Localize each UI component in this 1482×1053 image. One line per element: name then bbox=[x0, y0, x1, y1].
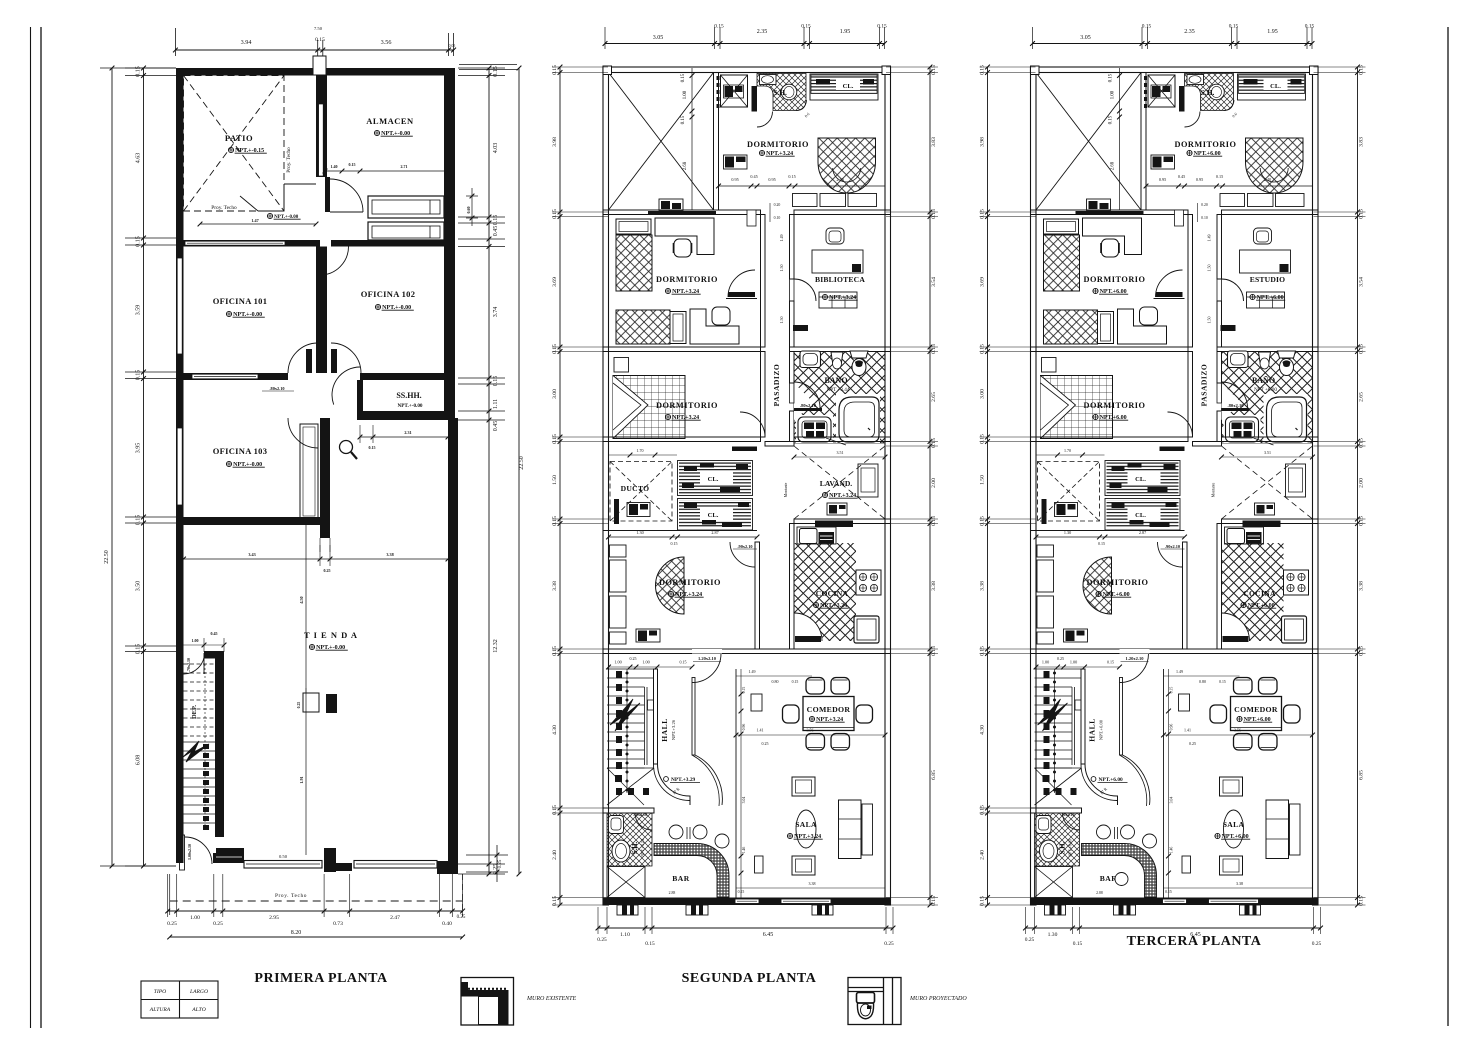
svg-text:0.15: 0.15 bbox=[877, 24, 887, 30]
svg-text:0.05: 0.05 bbox=[449, 44, 456, 48]
svg-text:3.69: 3.69 bbox=[552, 277, 558, 287]
svg-text:0.96: 0.96 bbox=[742, 724, 746, 731]
svg-text:1.10: 1.10 bbox=[620, 932, 630, 938]
svg-text:1.50: 1.50 bbox=[980, 475, 986, 485]
svg-text:0.15: 0.15 bbox=[931, 646, 937, 656]
svg-text:0.40: 0.40 bbox=[442, 921, 452, 927]
svg-text:0.15: 0.15 bbox=[1216, 174, 1223, 179]
svg-text:1.30: 1.30 bbox=[636, 530, 643, 535]
svg-text:3.56: 3.56 bbox=[807, 728, 814, 733]
svg-text:0.73: 0.73 bbox=[333, 921, 343, 927]
svg-text:0.15: 0.15 bbox=[680, 660, 687, 665]
svg-text:SS.HH.: SS.HH. bbox=[396, 391, 421, 400]
svg-text:1.50: 1.50 bbox=[552, 475, 558, 485]
svg-text:3.38: 3.38 bbox=[386, 552, 393, 557]
svg-text:0.15: 0.15 bbox=[931, 896, 937, 906]
svg-text:NPT.+6.00: NPT.+6.00 bbox=[1099, 719, 1104, 740]
svg-text:3.50: 3.50 bbox=[136, 581, 142, 592]
svg-text:0.15: 0.15 bbox=[1109, 73, 1114, 82]
svg-text:0.15: 0.15 bbox=[980, 896, 986, 906]
svg-text:0.45: 0.45 bbox=[211, 631, 218, 636]
svg-text:MURO EXISTENTE: MURO EXISTENTE bbox=[526, 996, 576, 1002]
svg-text:1.46: 1.46 bbox=[1170, 847, 1174, 854]
svg-text:3.95: 3.95 bbox=[136, 443, 142, 454]
svg-text:1.00: 1.00 bbox=[642, 660, 649, 665]
svg-text:0.95: 0.95 bbox=[768, 177, 775, 182]
svg-text:CL.: CL. bbox=[1135, 512, 1146, 519]
svg-text:1.50: 1.50 bbox=[779, 265, 784, 272]
svg-text:T I E N D A: T I E N D A bbox=[304, 630, 358, 640]
svg-text:1.47: 1.47 bbox=[251, 218, 258, 223]
svg-text:1.49: 1.49 bbox=[749, 669, 756, 674]
svg-text:1.49: 1.49 bbox=[1207, 235, 1212, 242]
svg-text:2.00: 2.00 bbox=[931, 478, 937, 488]
svg-text:OFICINA 101: OFICINA 101 bbox=[213, 296, 268, 306]
svg-text:DORMITORIO: DORMITORIO bbox=[1083, 401, 1145, 410]
svg-text:CL.: CL. bbox=[1270, 83, 1281, 90]
svg-text:1.00: 1.00 bbox=[614, 660, 621, 665]
svg-text:0.15: 0.15 bbox=[1219, 680, 1226, 684]
svg-text:DORMITORIO: DORMITORIO bbox=[659, 578, 721, 587]
svg-text:0.15: 0.15 bbox=[1165, 890, 1172, 894]
svg-text:.70x2.10: .70x2.10 bbox=[633, 812, 647, 817]
svg-text:.90x2.10: .90x2.10 bbox=[737, 544, 752, 549]
svg-text:1.00: 1.00 bbox=[1042, 660, 1049, 665]
svg-text:COMEDOR: COMEDOR bbox=[807, 705, 851, 714]
svg-text:2.40: 2.40 bbox=[1264, 177, 1271, 182]
svg-text:0.15: 0.15 bbox=[552, 209, 558, 219]
svg-text:1.00: 1.00 bbox=[192, 638, 199, 643]
svg-text:3.38: 3.38 bbox=[1359, 581, 1365, 591]
svg-text:BAÑO: BAÑO bbox=[1252, 376, 1275, 385]
svg-text:ALTURA: ALTURA bbox=[149, 1007, 171, 1013]
svg-text:SALA: SALA bbox=[795, 820, 817, 829]
svg-text:ESTUDIO: ESTUDIO bbox=[1250, 275, 1286, 284]
svg-text:2.71: 2.71 bbox=[401, 164, 408, 169]
svg-text:3.54: 3.54 bbox=[931, 277, 937, 287]
svg-text:0.15: 0.15 bbox=[931, 516, 937, 526]
svg-text:CL.: CL. bbox=[1135, 476, 1146, 483]
svg-text:SALA: SALA bbox=[1223, 820, 1245, 829]
svg-text:0.15: 0.15 bbox=[1073, 941, 1083, 947]
svg-text:3.56: 3.56 bbox=[381, 39, 392, 46]
svg-text:1.30: 1.30 bbox=[1064, 530, 1071, 535]
svg-text:0.15: 0.15 bbox=[493, 66, 499, 77]
svg-text:3.83: 3.83 bbox=[931, 137, 937, 147]
svg-text:0.60: 0.60 bbox=[466, 207, 471, 214]
svg-text:2.87: 2.87 bbox=[1139, 530, 1146, 535]
svg-text:3.74: 3.74 bbox=[493, 307, 499, 318]
svg-text:0.15: 0.15 bbox=[980, 434, 986, 444]
svg-text:NPT +6.00: NPT +6.00 bbox=[1254, 387, 1277, 393]
svg-text:0.15: 0.15 bbox=[645, 941, 655, 947]
svg-text:1.95: 1.95 bbox=[1267, 29, 1278, 35]
svg-text:0.15: 0.15 bbox=[980, 646, 986, 656]
svg-text:3.00: 3.00 bbox=[552, 389, 558, 399]
svg-text:3.51: 3.51 bbox=[1264, 450, 1271, 455]
svg-text:0.80: 0.80 bbox=[1199, 679, 1206, 684]
svg-text:DORMITORIO: DORMITORIO bbox=[1083, 275, 1145, 284]
svg-text:0.15: 0.15 bbox=[1305, 24, 1315, 30]
svg-text:0.45: 0.45 bbox=[1178, 174, 1185, 179]
svg-text:1.70: 1.70 bbox=[637, 448, 644, 453]
svg-text:3.05: 3.05 bbox=[653, 35, 664, 41]
svg-text:0.15: 0.15 bbox=[1109, 115, 1114, 124]
svg-text:1.49: 1.49 bbox=[779, 235, 784, 242]
svg-text:1.30: 1.30 bbox=[1048, 932, 1058, 938]
svg-text:PATIO: PATIO bbox=[225, 133, 253, 143]
svg-text:0.10: 0.10 bbox=[1201, 216, 1208, 220]
svg-text:SEGUNDA PLANTA: SEGUNDA PLANTA bbox=[682, 971, 817, 986]
svg-text:3.38: 3.38 bbox=[931, 581, 937, 591]
svg-text:0.15: 0.15 bbox=[681, 73, 686, 82]
svg-text:3.98: 3.98 bbox=[552, 137, 558, 147]
svg-text:6.08: 6.08 bbox=[136, 755, 142, 766]
svg-text:0.80: 0.80 bbox=[772, 679, 779, 684]
svg-text:0.15: 0.15 bbox=[1107, 660, 1114, 665]
svg-text:2.88: 2.88 bbox=[669, 891, 676, 895]
svg-text:0.15: 0.15 bbox=[681, 115, 686, 124]
svg-text:0.25: 0.25 bbox=[630, 656, 637, 661]
svg-text:CL.: CL. bbox=[843, 83, 854, 90]
svg-text:.80x2.10: .80x2.10 bbox=[1227, 403, 1244, 408]
svg-text:0.15: 0.15 bbox=[980, 65, 986, 75]
svg-text:2.88: 2.88 bbox=[1096, 891, 1103, 895]
svg-text:3.94: 3.94 bbox=[241, 39, 252, 46]
svg-text:1.40: 1.40 bbox=[331, 164, 338, 169]
svg-text:1.20x2.10: 1.20x2.10 bbox=[1126, 656, 1145, 661]
svg-text:2.35: 2.35 bbox=[1184, 29, 1195, 35]
svg-text:0.15: 0.15 bbox=[801, 24, 811, 30]
svg-text:0.25: 0.25 bbox=[324, 568, 331, 573]
svg-text:0.15: 0.15 bbox=[738, 890, 745, 894]
svg-text:0.25: 0.25 bbox=[213, 921, 223, 927]
svg-text:1.49: 1.49 bbox=[1176, 669, 1183, 674]
svg-text:0.95: 0.95 bbox=[1196, 177, 1203, 182]
svg-text:2.40: 2.40 bbox=[980, 850, 986, 860]
svg-text:0.15: 0.15 bbox=[369, 445, 376, 450]
svg-text:0.15: 0.15 bbox=[980, 516, 986, 526]
svg-text:0.25: 0.25 bbox=[1189, 741, 1196, 746]
svg-text:Montante: Montante bbox=[784, 482, 788, 497]
svg-text:0.25: 0.25 bbox=[1025, 937, 1035, 943]
svg-text:3.83: 3.83 bbox=[1359, 137, 1365, 147]
svg-text:0.15: 0.15 bbox=[552, 344, 558, 354]
svg-text:0.25: 0.25 bbox=[297, 702, 301, 709]
svg-text:1.91: 1.91 bbox=[299, 776, 304, 783]
svg-text:0.15: 0.15 bbox=[349, 162, 356, 167]
svg-text:4.63: 4.63 bbox=[136, 153, 142, 164]
svg-text:3.54: 3.54 bbox=[1359, 277, 1365, 287]
svg-text:3.38: 3.38 bbox=[980, 581, 986, 591]
svg-text:0.25: 0.25 bbox=[762, 741, 769, 746]
svg-text:4.30: 4.30 bbox=[980, 725, 986, 735]
svg-text:NPT.+3.26: NPT.+3.26 bbox=[671, 719, 676, 740]
svg-text:.70x2.10: .70x2.10 bbox=[1061, 812, 1075, 817]
svg-text:0.15: 0.15 bbox=[792, 680, 799, 684]
svg-text:2.40: 2.40 bbox=[836, 177, 843, 182]
svg-text:0.15: 0.15 bbox=[493, 376, 499, 387]
svg-text:0.25: 0.25 bbox=[1312, 941, 1322, 947]
svg-text:NPT.+6.00: NPT.+6.00 bbox=[1068, 839, 1073, 857]
svg-text:0.20: 0.20 bbox=[774, 203, 781, 207]
svg-text:0.15: 0.15 bbox=[315, 37, 325, 43]
svg-text:3.04: 3.04 bbox=[742, 797, 746, 804]
svg-text:NPT +3.44: NPT +3.44 bbox=[826, 387, 849, 393]
svg-text:0.15: 0.15 bbox=[136, 515, 142, 526]
svg-text:3.38: 3.38 bbox=[809, 881, 816, 886]
svg-text:MURO PROYECTADO: MURO PROYECTADO bbox=[909, 996, 967, 1002]
svg-text:1.00: 1.00 bbox=[683, 90, 688, 99]
svg-text:DEP.: DEP. bbox=[191, 705, 198, 719]
svg-text:0.15: 0.15 bbox=[1359, 438, 1365, 448]
svg-text:Montante: Montante bbox=[1212, 482, 1216, 497]
svg-text:0.15: 0.15 bbox=[552, 646, 558, 656]
svg-text:S.H.: S.H. bbox=[773, 88, 787, 97]
svg-text:0.15: 0.15 bbox=[671, 541, 678, 546]
svg-text:0.15: 0.15 bbox=[980, 344, 986, 354]
svg-text:DORMITORIO: DORMITORIO bbox=[656, 401, 718, 410]
svg-text:0.20: 0.20 bbox=[1201, 203, 1208, 207]
svg-text:0.15: 0.15 bbox=[552, 434, 558, 444]
svg-text:0.15: 0.15 bbox=[1359, 344, 1365, 354]
svg-text:3.51: 3.51 bbox=[837, 450, 844, 455]
svg-text:6.85: 6.85 bbox=[1359, 770, 1365, 780]
svg-text:DUCTO: DUCTO bbox=[621, 484, 650, 493]
svg-text:0.15: 0.15 bbox=[552, 896, 558, 906]
svg-text:ALTO: ALTO bbox=[191, 1007, 205, 1013]
svg-text:3.43: 3.43 bbox=[248, 552, 255, 557]
svg-text:0.15: 0.15 bbox=[552, 65, 558, 75]
svg-text:0.50: 0.50 bbox=[279, 854, 288, 859]
svg-text:2.65: 2.65 bbox=[1359, 392, 1365, 402]
svg-text:CL.: CL. bbox=[708, 476, 719, 483]
svg-text:1.00: 1.00 bbox=[1070, 660, 1077, 665]
svg-text:0.15: 0.15 bbox=[931, 65, 937, 75]
svg-text:0.15: 0.15 bbox=[931, 344, 937, 354]
svg-text:DORMITORIO: DORMITORIO bbox=[656, 275, 718, 284]
svg-text:0.25: 0.25 bbox=[1057, 656, 1064, 661]
svg-text:0.45: 0.45 bbox=[493, 421, 499, 432]
svg-text:OFICINA 103: OFICINA 103 bbox=[213, 446, 268, 456]
svg-text:1.50: 1.50 bbox=[779, 317, 784, 324]
svg-text:NPT.+3.29: NPT.+3.29 bbox=[671, 777, 696, 783]
svg-text:12.32: 12.32 bbox=[493, 639, 499, 653]
svg-text:LARGO: LARGO bbox=[189, 989, 208, 995]
svg-text:0.15: 0.15 bbox=[788, 174, 795, 179]
svg-text:0.15: 0.15 bbox=[742, 687, 746, 694]
svg-text:1.41: 1.41 bbox=[757, 728, 764, 733]
svg-text:0.15: 0.15 bbox=[493, 215, 499, 226]
svg-text:0.15: 0.15 bbox=[714, 24, 724, 30]
svg-text:6.45: 6.45 bbox=[763, 932, 774, 938]
svg-text:1.11: 1.11 bbox=[493, 399, 499, 409]
svg-text:.90x2.10: .90x2.10 bbox=[1165, 544, 1180, 549]
svg-text:BIBLIOTECA: BIBLIOTECA bbox=[815, 275, 865, 284]
svg-text:0.15: 0.15 bbox=[931, 438, 937, 448]
svg-text:0.15: 0.15 bbox=[1359, 209, 1365, 219]
svg-text:8.20: 8.20 bbox=[291, 930, 302, 936]
svg-text:4.30: 4.30 bbox=[552, 725, 558, 735]
svg-text:S.H.: S.H. bbox=[1060, 841, 1067, 854]
svg-text:1.70: 1.70 bbox=[1064, 448, 1071, 453]
svg-text:DORMITORIO: DORMITORIO bbox=[747, 140, 809, 149]
svg-text:BAR: BAR bbox=[672, 874, 690, 883]
svg-text:TIPO: TIPO bbox=[154, 989, 166, 995]
svg-text:.80x2.10: .80x2.10 bbox=[269, 386, 284, 391]
svg-text:0.25: 0.25 bbox=[884, 941, 894, 947]
svg-text:0.25: 0.25 bbox=[498, 859, 503, 868]
svg-text:DORMITORIO: DORMITORIO bbox=[1174, 140, 1236, 149]
svg-text:0.15: 0.15 bbox=[1229, 24, 1239, 30]
svg-text:1.20x2.10: 1.20x2.10 bbox=[698, 656, 717, 661]
svg-text:0.96: 0.96 bbox=[1170, 724, 1174, 731]
svg-text:0.15: 0.15 bbox=[136, 644, 142, 655]
svg-text:TERCERA PLANTA: TERCERA PLANTA bbox=[1127, 934, 1262, 949]
svg-text:0.15: 0.15 bbox=[1359, 646, 1365, 656]
svg-text:0.15: 0.15 bbox=[931, 209, 937, 219]
svg-text:0.15: 0.15 bbox=[1170, 687, 1174, 694]
svg-text:1.00: 1.00 bbox=[1111, 90, 1116, 99]
svg-text:.70x2.10: .70x2.10 bbox=[186, 658, 191, 672]
svg-text:3.98: 3.98 bbox=[980, 137, 986, 147]
svg-text:0.15: 0.15 bbox=[552, 805, 558, 815]
svg-text:NPT.+-0.00: NPT.+-0.00 bbox=[397, 403, 422, 409]
svg-text:0.15: 0.15 bbox=[136, 370, 142, 381]
svg-text:0.95: 0.95 bbox=[1159, 177, 1166, 182]
svg-text:LAVAND.: LAVAND. bbox=[820, 479, 853, 488]
svg-text:S.H.: S.H. bbox=[1201, 88, 1215, 97]
svg-text:PASADIZO: PASADIZO bbox=[772, 364, 781, 407]
svg-text:7.50: 7.50 bbox=[314, 26, 323, 31]
svg-text:0.15: 0.15 bbox=[980, 209, 986, 219]
svg-text:OFICINA 102: OFICINA 102 bbox=[361, 289, 416, 299]
svg-text:DORMITORIO: DORMITORIO bbox=[1086, 578, 1148, 587]
svg-text:BAÑO: BAÑO bbox=[824, 376, 847, 385]
svg-text:0.15: 0.15 bbox=[136, 236, 142, 247]
svg-text:3.56: 3.56 bbox=[1234, 728, 1241, 733]
svg-text:3.38: 3.38 bbox=[552, 581, 558, 591]
svg-text:2.68: 2.68 bbox=[683, 161, 688, 170]
svg-text:2.35: 2.35 bbox=[757, 29, 768, 35]
svg-text:3.00: 3.00 bbox=[980, 389, 986, 399]
svg-text:0.45: 0.45 bbox=[493, 226, 499, 237]
svg-text:3.59: 3.59 bbox=[136, 305, 142, 316]
svg-text:3.69: 3.69 bbox=[980, 277, 986, 287]
svg-text:1.95: 1.95 bbox=[840, 29, 851, 35]
svg-text:3.04: 3.04 bbox=[1170, 797, 1174, 804]
svg-text:2.65: 2.65 bbox=[931, 392, 937, 402]
svg-text:NPT.+6.00: NPT.+6.00 bbox=[1099, 777, 1124, 783]
svg-text:0.15: 0.15 bbox=[1098, 541, 1105, 546]
svg-text:2.47: 2.47 bbox=[390, 915, 400, 921]
svg-text:4.50: 4.50 bbox=[299, 596, 304, 603]
svg-text:0.15: 0.15 bbox=[980, 805, 986, 815]
svg-text:PASADIZO: PASADIZO bbox=[1200, 364, 1209, 407]
svg-text:2.95: 2.95 bbox=[269, 915, 279, 921]
svg-text:0.10: 0.10 bbox=[774, 216, 781, 220]
svg-text:3.38: 3.38 bbox=[1236, 881, 1243, 886]
svg-text:0.15: 0.15 bbox=[1359, 516, 1365, 526]
svg-text:1.41: 1.41 bbox=[1184, 728, 1191, 733]
svg-text:.80x2.10: .80x2.10 bbox=[800, 403, 817, 408]
svg-text:0.15: 0.15 bbox=[1142, 24, 1152, 30]
svg-text:22.50: 22.50 bbox=[519, 456, 525, 470]
svg-text:2.31: 2.31 bbox=[404, 430, 411, 435]
svg-text:3.05: 3.05 bbox=[1080, 35, 1091, 41]
svg-text:0.45: 0.45 bbox=[750, 174, 757, 179]
svg-text:1.00: 1.00 bbox=[190, 915, 200, 921]
svg-text:2.40: 2.40 bbox=[552, 850, 558, 860]
svg-text:1.50: 1.50 bbox=[1207, 317, 1212, 324]
svg-text:2.87: 2.87 bbox=[711, 530, 718, 535]
svg-text:0.15: 0.15 bbox=[1359, 65, 1365, 75]
svg-text:Proy. Techo: Proy. Techo bbox=[275, 893, 307, 899]
svg-text:Proy. Techo: Proy. Techo bbox=[211, 205, 237, 211]
svg-text:1.46: 1.46 bbox=[742, 847, 746, 854]
svg-text:0.25: 0.25 bbox=[597, 937, 607, 943]
svg-text:NPT.+3.24: NPT.+3.24 bbox=[640, 839, 645, 857]
svg-text:2.68: 2.68 bbox=[1111, 161, 1116, 170]
svg-text:6.85: 6.85 bbox=[931, 770, 937, 780]
svg-text:0.95: 0.95 bbox=[731, 177, 738, 182]
svg-text:Proy. Techo: Proy. Techo bbox=[286, 147, 292, 173]
svg-text:S.H.: S.H. bbox=[632, 841, 639, 854]
svg-text:0.25: 0.25 bbox=[457, 915, 466, 920]
svg-text:COCINA: COCINA bbox=[816, 589, 849, 598]
svg-text:ALMACEN: ALMACEN bbox=[366, 116, 414, 126]
svg-text:HALL: HALL bbox=[660, 718, 669, 742]
svg-text:1.50: 1.50 bbox=[1207, 265, 1212, 272]
svg-text:0.15: 0.15 bbox=[1359, 896, 1365, 906]
svg-text:22.50: 22.50 bbox=[104, 550, 110, 564]
svg-text:1.00x2.10: 1.00x2.10 bbox=[187, 844, 192, 860]
svg-text:0.25: 0.25 bbox=[167, 921, 177, 927]
svg-text:CL.: CL. bbox=[708, 512, 719, 519]
svg-text:2.00: 2.00 bbox=[1359, 478, 1365, 488]
svg-text:COCINA: COCINA bbox=[1243, 589, 1276, 598]
svg-text:4.03: 4.03 bbox=[493, 143, 499, 154]
svg-text:PRIMERA PLANTA: PRIMERA PLANTA bbox=[254, 971, 388, 986]
svg-text:HALL: HALL bbox=[1088, 718, 1097, 742]
svg-text:0.15: 0.15 bbox=[552, 516, 558, 526]
svg-text:COMEDOR: COMEDOR bbox=[1234, 705, 1278, 714]
